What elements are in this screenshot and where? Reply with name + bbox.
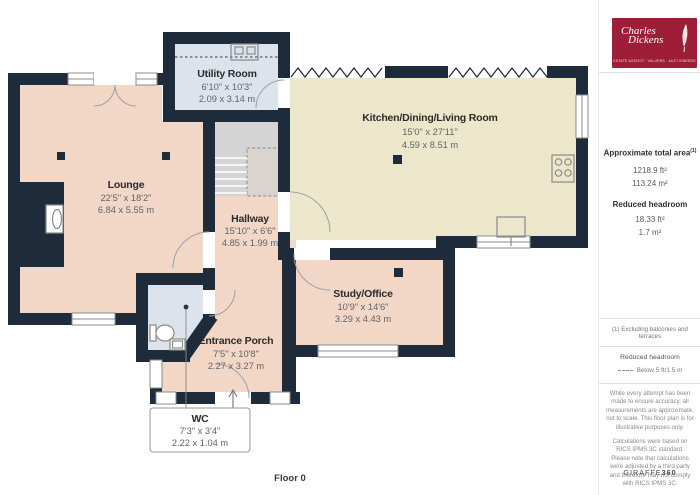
reduced-headroom-area: [247, 148, 282, 196]
legend-title: Reduced headroom: [599, 354, 700, 361]
dashed-line-sample: [618, 370, 633, 371]
sink-icon: [170, 339, 185, 350]
svg-text:2.22 x 1.04 m: 2.22 x 1.04 m: [172, 438, 229, 448]
svg-text:22'5" x 18'2": 22'5" x 18'2": [101, 193, 152, 203]
info-sidebar: Charles Dickens ESTATE AGENTS · VALUERS …: [598, 0, 700, 495]
floor-label: Floor 0: [274, 473, 306, 484]
total-area-ft: 1218.9 ft²: [599, 164, 700, 177]
svg-text:2.09 x 3.14 m: 2.09 x 3.14 m: [199, 94, 256, 104]
disclaimer-paragraph: Calculations were based on RICS IPMS 3C …: [606, 438, 694, 488]
room-label-kitchen: Kitchen/Dining/Living Room: [362, 112, 497, 124]
column: [393, 155, 402, 164]
svg-text:4.59 x 8.51 m: 4.59 x 8.51 m: [402, 140, 459, 150]
column: [57, 152, 65, 160]
reduced-headroom-ft: 18.33 ft²: [599, 213, 700, 226]
total-area-title: Approximate total area(1): [599, 148, 700, 158]
svg-text:7'5" x 10'8": 7'5" x 10'8": [213, 349, 259, 359]
disclaimer-paragraph: While every attempt has been made to ens…: [606, 390, 694, 432]
agency-logo: Charles Dickens ESTATE AGENTS · VALUERS …: [612, 18, 697, 68]
floor-plan: Utility Room 6'10" x 10'3" 2.09 x 3.14 m…: [0, 0, 590, 495]
footnote: (1) Excluding balconies and terraces: [599, 326, 700, 340]
window: [150, 360, 162, 388]
quill-icon: [679, 23, 691, 53]
reduced-headroom-title: Reduced headroom: [599, 200, 700, 209]
svg-text:3.29 x 4.43 m: 3.29 x 4.43 m: [335, 314, 392, 324]
column: [394, 268, 403, 277]
floor-plan-svg: Utility Room 6'10" x 10'3" 2.09 x 3.14 m…: [0, 0, 590, 495]
room-kitchen-floor: [288, 76, 578, 240]
reduced-headroom-m: 1.7 m²: [599, 226, 700, 239]
room-label-wc: WC: [191, 413, 209, 425]
legend: Reduced headroom Below 5 ft/1.5 m: [599, 354, 700, 374]
disclaimer: While every attempt has been made to ens…: [599, 390, 700, 494]
svg-text:10'9" x 14'6": 10'9" x 14'6": [338, 302, 389, 312]
svg-text:6'10" x 10'3": 6'10" x 10'3": [202, 82, 253, 92]
room-label-study: Study/Office: [333, 288, 393, 300]
window: [270, 392, 290, 404]
fireplace-icon: [46, 205, 63, 233]
legend-row: Below 5 ft/1.5 m: [599, 367, 700, 374]
svg-text:15'10" x 6'6": 15'10" x 6'6": [225, 226, 276, 236]
agency-name: Charles Dickens: [621, 27, 663, 45]
room-label-hallway: Hallway: [231, 213, 269, 225]
svg-text:2.27 x 3.27 m: 2.27 x 3.27 m: [208, 361, 265, 371]
svg-text:7'3" x 3'4": 7'3" x 3'4": [180, 426, 221, 436]
room-label-porch: Entrance Porch: [199, 335, 274, 347]
svg-text:15'0" x 27'11": 15'0" x 27'11": [402, 127, 457, 137]
agency-tagline: ESTATE AGENTS · VALUERS · AUCTIONEERS: [612, 59, 697, 63]
room-label-lounge: Lounge: [108, 179, 145, 191]
divider: [599, 346, 700, 347]
svg-text:6.84 x 5.55 m: 6.84 x 5.55 m: [98, 205, 155, 215]
window: [156, 392, 176, 404]
area-summary: Approximate total area(1) 1218.9 ft² 113…: [599, 148, 700, 239]
svg-text:4.85 x 1.99 m: 4.85 x 1.99 m: [222, 238, 279, 248]
divider: [599, 383, 700, 384]
room-label-utility: Utility Room: [197, 68, 256, 80]
floor-fills: [20, 44, 578, 398]
brand-mark: GIRAFFE360: [599, 468, 700, 477]
divider: [599, 72, 700, 73]
total-area-m: 113.24 m²: [599, 177, 700, 190]
column: [162, 152, 170, 160]
divider: [599, 318, 700, 319]
